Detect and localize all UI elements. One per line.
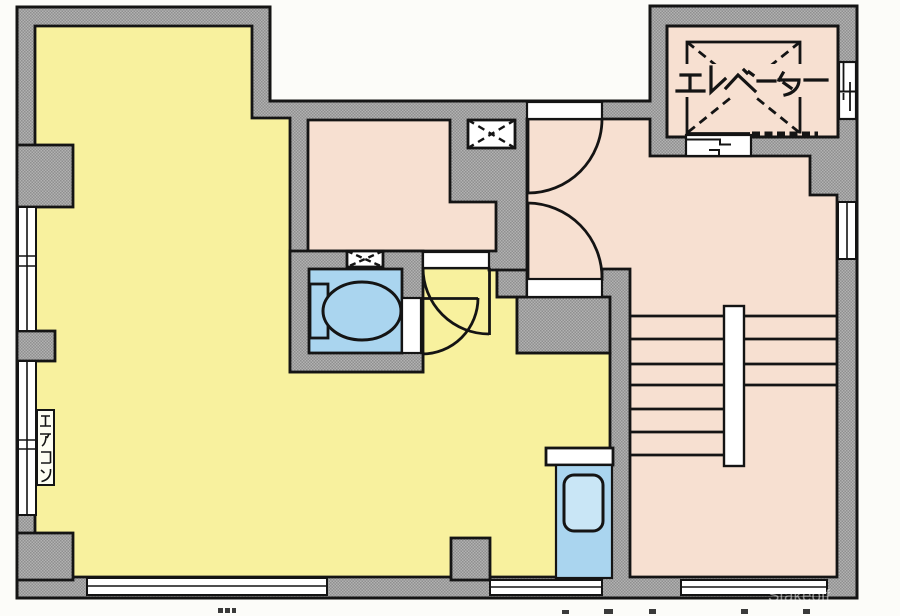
svg-text:Stakeoff: Stakeoff <box>768 586 830 605</box>
